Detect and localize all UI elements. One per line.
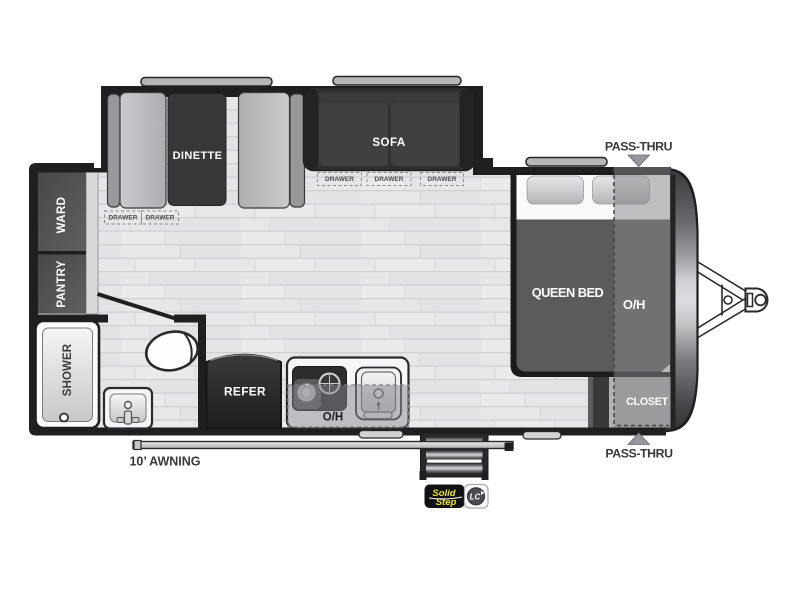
svg-text:DINETTE: DINETTE [173, 150, 223, 162]
svg-text:SHOWER: SHOWER [62, 343, 74, 396]
svg-text:DRAWER: DRAWER [428, 176, 457, 183]
svg-text:WARD: WARD [56, 197, 68, 234]
svg-text:10’ AWNING: 10’ AWNING [129, 455, 200, 469]
svg-text:PASS-THRU: PASS-THRU [605, 447, 673, 461]
svg-text:REFER: REFER [224, 385, 266, 399]
svg-text:DRAWER: DRAWER [109, 215, 138, 222]
svg-text:SOFA: SOFA [372, 137, 405, 149]
svg-text:PANTRY: PANTRY [56, 260, 68, 307]
svg-text:LC: LC [470, 492, 481, 501]
svg-text:O/H: O/H [323, 412, 343, 424]
svg-text:O/H: O/H [623, 297, 645, 312]
svg-text:DRAWER: DRAWER [146, 215, 175, 222]
svg-text:PASS-THRU: PASS-THRU [605, 140, 673, 154]
svg-text:CLOSET: CLOSET [626, 396, 668, 408]
svg-text:QUEEN BED: QUEEN BED [532, 285, 604, 300]
svg-text:DRAWER: DRAWER [325, 176, 354, 183]
svg-text:DRAWER: DRAWER [375, 176, 404, 183]
